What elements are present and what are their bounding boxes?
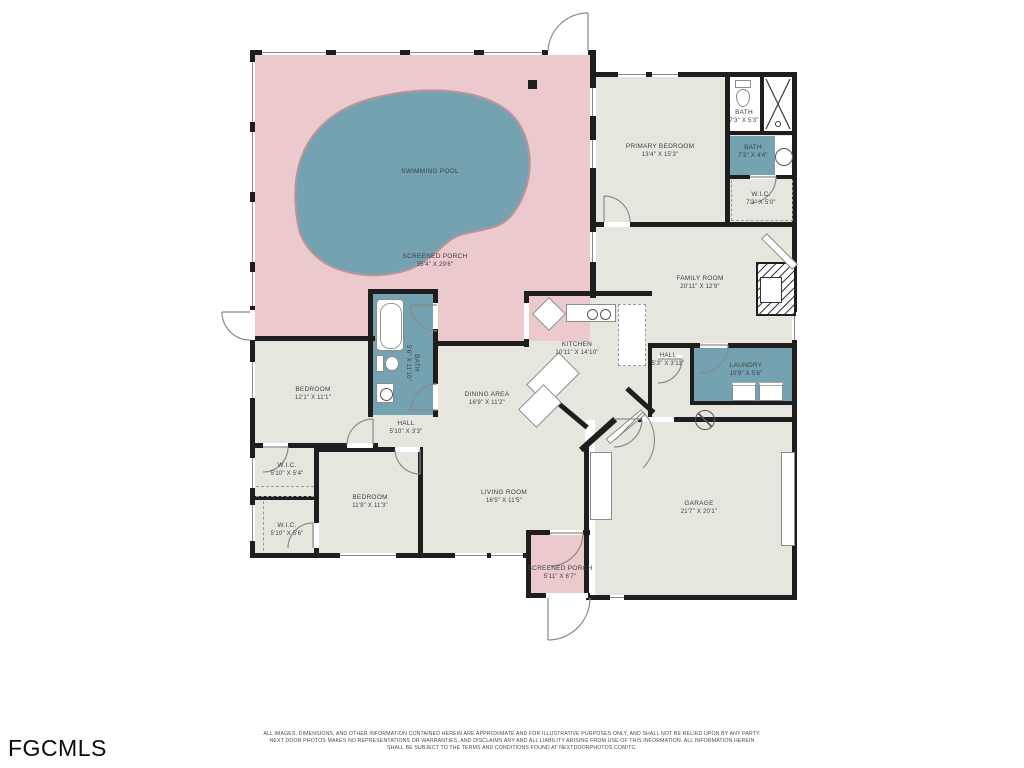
label-bedroom-1: BEDROOM12'1" X 11'1": [295, 386, 331, 402]
gap-porch-left-door: [250, 310, 255, 340]
gap-wic1-door: [263, 443, 288, 448]
label-wic-2: W.I.C.5'10" X 5'6": [271, 522, 304, 538]
gap-primary-wic-door: [750, 175, 776, 179]
wall-bedroom2-east: [418, 447, 423, 553]
disclaimer-line-3: SHALL BE SUBJECT TO THE TERMS AND CONDIT…: [0, 745, 1024, 751]
window-porch-left-3: [250, 202, 255, 262]
wall-bath3-top: [368, 289, 438, 294]
label-hall-bath: BATH5'6" X 11'10": [404, 345, 420, 381]
label-hall-small: HALL5'3" X 3'11": [652, 352, 685, 368]
gap-bedroom2-door: [395, 447, 420, 452]
window-family-west-slider: [590, 232, 596, 262]
window-porch-left-2: [250, 132, 255, 192]
wall-small-porch-west: [526, 530, 531, 598]
round-sink-icon: [775, 148, 793, 166]
label-kitchen: KITCHEN10'11" X 14'10": [555, 341, 598, 357]
gap-porch-bottom-door: [546, 593, 588, 598]
label-laundry: LAUNDRY10'9" X 5'6": [730, 362, 763, 378]
stove-icon: [566, 304, 616, 322]
disclaimer-line-2: NEXT DOOR PHOTOS MAKES NO REPRESENTATION…: [0, 738, 1024, 744]
shower-room: [764, 77, 792, 131]
gap-laundry-door: [700, 343, 728, 348]
label-wic-1: W.I.C.5'10" X 5'4": [271, 462, 304, 478]
wall-laundry-bottom: [690, 401, 797, 405]
label-bath-1: BATH7'3" X 5'3": [729, 109, 758, 125]
burner-icon: [600, 309, 611, 320]
window-porch-left-4: [250, 272, 255, 306]
label-small-porch: SCREENED PORCH5'11" X 6'7": [528, 565, 593, 581]
label-family-room: FAMILY ROOM20'11" X 12'9": [676, 275, 723, 291]
window-living-bottom-1: [455, 553, 487, 558]
wall-porch-south-bedroom: [250, 336, 375, 341]
kitchen-counter-east: [618, 304, 646, 366]
bathtub-basin: [380, 303, 402, 349]
washer-icon: [732, 382, 756, 401]
fireplace-box: [760, 277, 782, 303]
wall-bath1-bottom: [725, 131, 797, 135]
label-wic-primary: W.I.C.7'3" X 5'0": [746, 191, 775, 207]
gap-bath3-upper-door: [433, 303, 438, 329]
label-swimming-pool: SWIMMING POOL: [401, 168, 459, 176]
window-porch-top-2: [336, 50, 400, 55]
small-porch-area: [531, 535, 584, 593]
gap-garage-door-north: [642, 417, 674, 422]
window-primary-west-2: [590, 140, 596, 168]
gap-bath3-lower-door: [433, 384, 438, 410]
gap-kitchen-slider: [524, 303, 529, 339]
label-primary-bedroom: PRIMARY BEDROOM13'4" X 15'3": [626, 143, 695, 159]
closet-shelf-wic2: [255, 501, 264, 551]
window-porch-top-3: [410, 50, 474, 55]
window-wic1-left: [250, 458, 255, 488]
porch-post: [528, 80, 537, 89]
pedestal-sink-icon: [376, 383, 394, 403]
window-garage-bottom: [610, 595, 624, 600]
gap-wic2-door: [314, 523, 319, 548]
wall-laundry-west: [690, 348, 694, 403]
gap-bedroom1-door: [347, 443, 373, 448]
wall-kitchen-north: [524, 291, 652, 296]
window-bedroom1-left: [250, 362, 255, 398]
garage-door-icon: [781, 452, 795, 546]
gap-small-porch-door: [550, 530, 583, 535]
burner-icon: [587, 309, 598, 320]
label-garage: GARAGE21'7" X 20'1": [681, 500, 718, 516]
label-bath-2: BATH7'3" X 4'4": [738, 144, 767, 160]
window-primary-top-1: [618, 72, 646, 77]
fireplace-icon: [756, 262, 796, 316]
window-porch-top-1: [262, 50, 326, 55]
bathtub-icon: [376, 299, 404, 351]
label-bedroom-2: BEDROOM11'9" X 11'3": [352, 494, 388, 510]
gap-primary-door: [604, 222, 630, 227]
window-family-east: [792, 312, 797, 340]
label-dining-area: DINING AREA16'9" X 11'2": [465, 391, 510, 407]
floor-plan-page: { "title": "Residential floor plan with …: [0, 0, 1024, 768]
closet-shelf-wic1: [256, 486, 314, 497]
gap-porch-top-door: [548, 50, 588, 55]
dryer-icon: [759, 382, 783, 401]
window-primary-top-2: [652, 72, 678, 77]
toilet-icon: [735, 80, 751, 88]
wall-baths-west: [725, 75, 730, 225]
window-porch-top-4: [484, 50, 542, 55]
wall-bath-shower-divider: [760, 77, 764, 133]
garage-shelf-icon: [590, 452, 612, 520]
window-primary-west-1: [590, 88, 596, 116]
label-hall-2: HALL5'10" X 3'3": [390, 420, 423, 436]
window-living-bottom-2: [491, 553, 523, 558]
disclaimer-line-1: ALL IMAGES, DIMENSIONS, AND OTHER INFORM…: [0, 731, 1024, 737]
toilet-bowl-icon-2: [385, 356, 399, 371]
label-screened-porch: SCREENED PORCH35'4" X 29'6": [403, 253, 468, 269]
water-heater-icon: [695, 410, 715, 430]
window-porch-left-1: [250, 62, 255, 122]
window-bedroom2-bottom: [340, 553, 396, 558]
wall-bath3-west: [368, 289, 373, 417]
toilet-icon-2: [376, 355, 384, 372]
wall-porch-south-dining: [438, 341, 529, 346]
label-living-room: LIVING ROOM16'5" X 11'5": [481, 489, 527, 505]
sink-basin: [380, 388, 393, 401]
